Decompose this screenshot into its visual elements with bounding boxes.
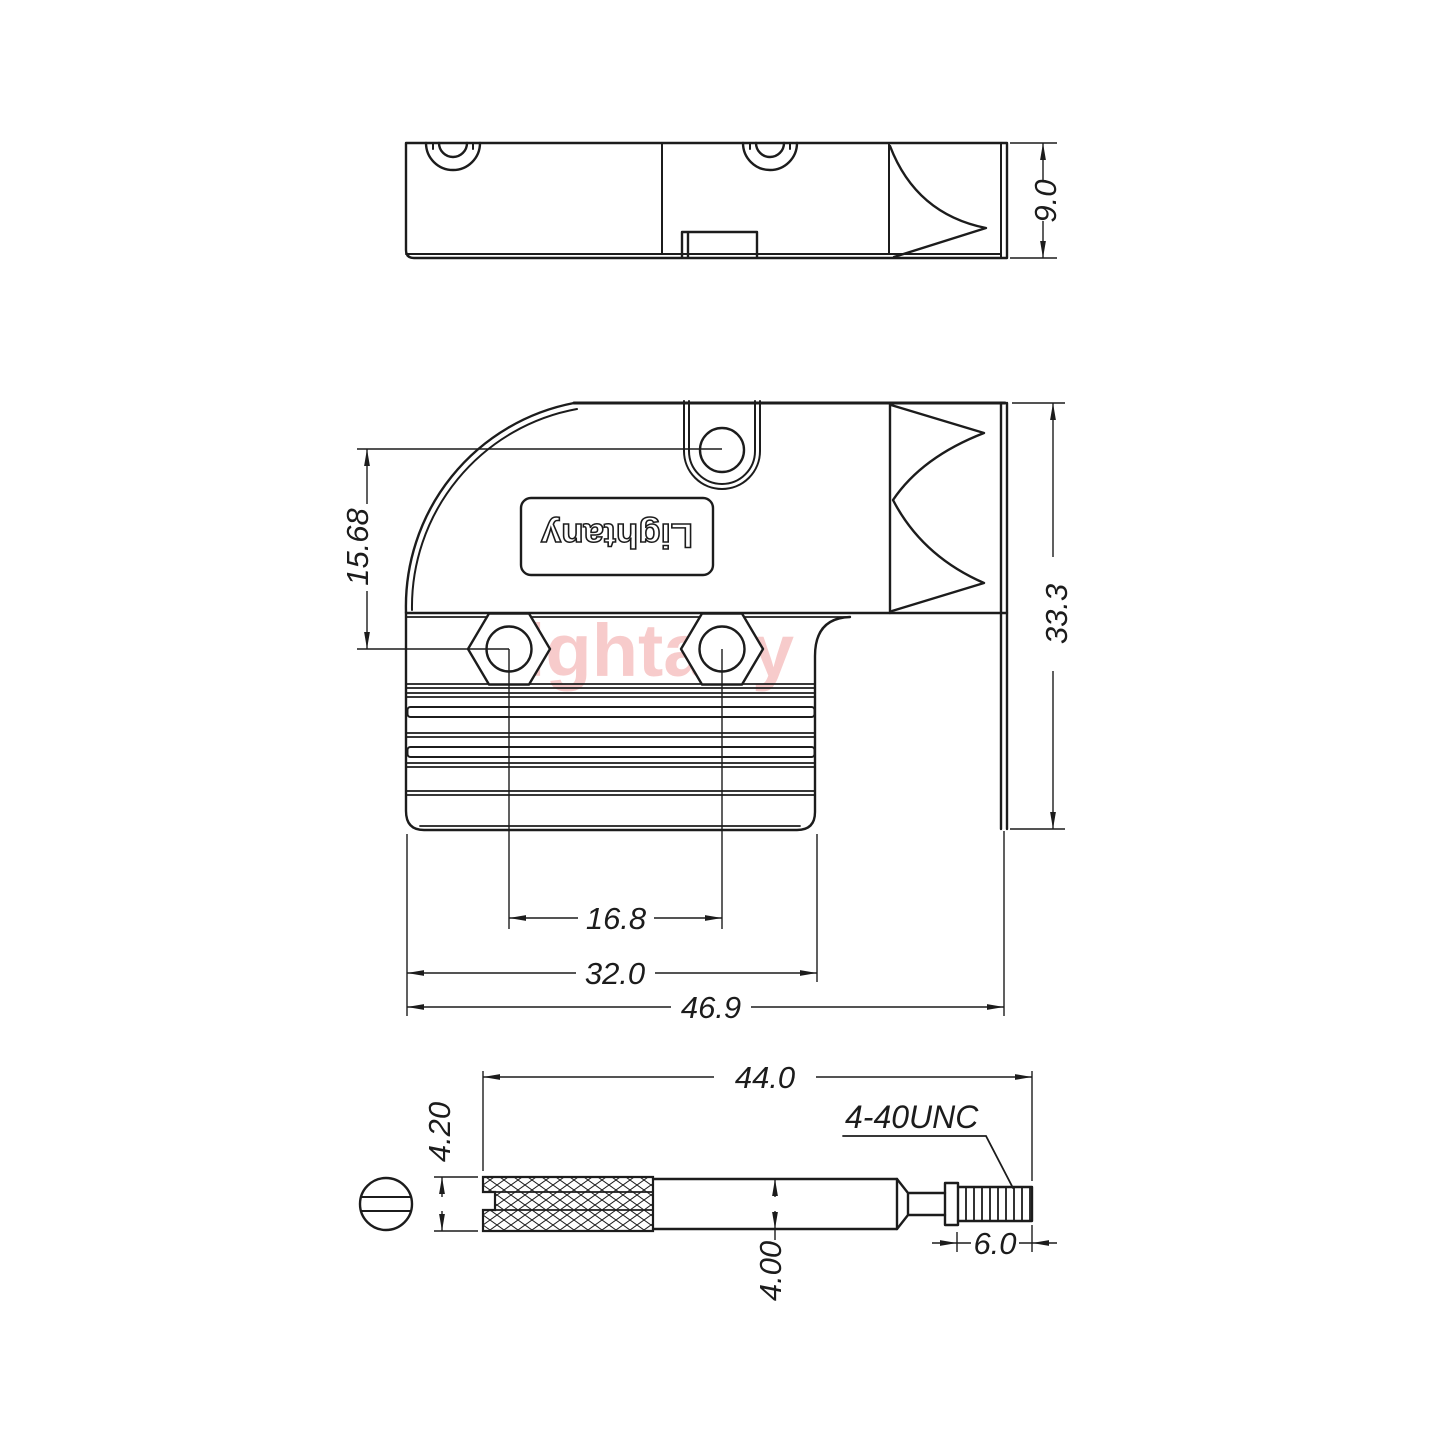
- mounting-tab-hole: [700, 428, 744, 472]
- top-view-inner-edges: [406, 143, 1001, 258]
- screw-knurled-grip: [483, 1177, 653, 1231]
- dim-32-0-label: 32.0: [585, 956, 645, 991]
- dim-44-0-label: 44.0: [735, 1060, 795, 1095]
- screw-neck: [897, 1179, 945, 1229]
- dim-15-68-label: 15.68: [340, 507, 375, 585]
- top-view-outline: [406, 143, 1007, 258]
- technical-drawing-canvas: Lightany 9.0: [0, 0, 1440, 1440]
- screw-thread-crests: [958, 1187, 1030, 1221]
- top-view-strain-relief-curve: [890, 146, 986, 257]
- dim-33-3-label: 33.3: [1039, 584, 1074, 644]
- front-view-strain-relief-block: [890, 403, 1007, 829]
- dim-6-0: 6.0: [932, 1225, 1057, 1261]
- dim-9-0-label: 9.0: [1028, 179, 1063, 222]
- thread-spec-callout: 4-40UNC: [843, 1099, 1013, 1188]
- screw-collar: [945, 1183, 958, 1225]
- front-view-rib-band-2: [408, 747, 815, 757]
- screw-head-end-view: [360, 1178, 412, 1230]
- dim-16-8: 16.8: [509, 649, 722, 936]
- front-view-corner-arc-inner: [412, 409, 577, 610]
- dim-15-68: 15.68: [340, 449, 375, 649]
- top-view-screw-notches: [426, 143, 797, 170]
- dim-46-9-label: 46.9: [681, 990, 741, 1025]
- jackscrew-view: 44.0 4.20 4.00 6.0 4-40UNC: [360, 1060, 1057, 1301]
- front-view-rib-band-1: [408, 707, 815, 717]
- front-view: Lightany 15.68 33.3 16.8 32.0: [340, 401, 1074, 1025]
- dim-16-8-label: 16.8: [586, 901, 647, 936]
- dim-46-9: 46.9: [407, 831, 1004, 1025]
- dim-4-00-label: 4.00: [753, 1241, 788, 1301]
- dim-4-00: 4.00: [753, 1179, 788, 1301]
- front-view-corner-arc-outer: [406, 403, 574, 612]
- front-view-rib-lines: [406, 684, 815, 795]
- mounting-tab: [684, 401, 760, 489]
- dim-9-0: 9.0: [1010, 143, 1063, 258]
- screw-thread-body: [958, 1187, 1032, 1221]
- dim-4-20-extension-lines: [434, 1177, 478, 1231]
- dim-6-0-label: 6.0: [973, 1226, 1016, 1261]
- front-view-strain-relief-curves: [891, 405, 984, 611]
- top-view: 9.0: [406, 143, 1063, 258]
- logo-text: Lightany: [541, 516, 693, 554]
- screw-head-slot: [361, 1197, 411, 1211]
- thread-spec-label: 4-40UNC: [845, 1099, 979, 1135]
- dim-33-3: 33.3: [1010, 403, 1074, 829]
- dim-4-20-label: 4.20: [422, 1102, 457, 1162]
- top-view-divider-lines: [662, 143, 889, 254]
- drawing-page: Lightany 9.0: [0, 0, 1440, 1440]
- dim-4-20: 4.20: [422, 1102, 478, 1231]
